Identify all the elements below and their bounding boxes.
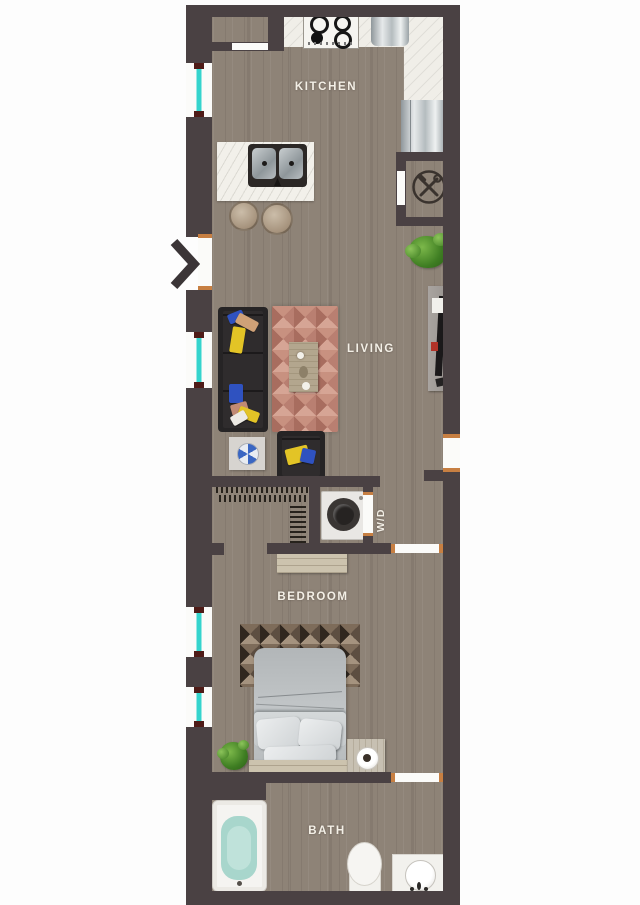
entry-door-opening: [198, 237, 212, 287]
laundry-door-opening: [363, 495, 373, 533]
wall-closet-top: [211, 476, 380, 487]
armchair-pillow: [300, 448, 317, 465]
wall-left: [186, 657, 212, 687]
burner-icon: [334, 31, 352, 49]
bath-door-opening: [395, 773, 439, 782]
sink-basin-left: [252, 148, 276, 179]
bed: [254, 648, 346, 770]
window: [186, 687, 212, 727]
wall-closet-divider: [309, 487, 320, 543]
potted-plant: [409, 236, 447, 268]
bath-door-jamb: [439, 773, 443, 782]
bedroom-label: BEDROOM: [263, 591, 363, 603]
fridge-handle: [401, 100, 406, 152]
wall-stub-right: [424, 470, 443, 481]
bathtub-water: [221, 816, 257, 880]
floorplan-canvas: KITCHEN LIVING W/D BEDROOM BATH: [0, 0, 640, 905]
living-label: LIVING: [331, 343, 411, 355]
bar-stool: [261, 203, 293, 235]
wall-left: [186, 117, 212, 237]
faucet-icon: [274, 178, 281, 186]
sink-basin-right: [279, 148, 303, 179]
bath-label: BATH: [277, 825, 377, 837]
entry-closet-door-gap: [232, 43, 268, 50]
kitchen-label: KITCHEN: [276, 81, 376, 93]
utility-tools-icon: [411, 169, 447, 205]
burner-icon: [310, 15, 329, 34]
wall-left: [186, 5, 212, 63]
entry-door-jamb: [198, 234, 212, 238]
wall-left: [186, 388, 212, 543]
wall-top: [200, 5, 460, 17]
burner-icon: [334, 15, 351, 32]
bar-stool: [229, 201, 259, 231]
vanity-faucet-icon: [417, 882, 421, 890]
wall-left: [186, 290, 212, 332]
wall-left: [186, 555, 212, 607]
laundry-label: W/D: [375, 498, 387, 542]
tub-drain-icon: [237, 881, 242, 886]
bedroom-door-opening: [395, 544, 439, 553]
console-item-red: [431, 342, 438, 351]
sofa: [218, 307, 268, 432]
decor-bowl: [237, 443, 259, 465]
bathtub: [212, 800, 267, 892]
sofa-pillow: [229, 384, 243, 403]
closet-hanging-clothes: [219, 495, 306, 502]
counter-appliance: [371, 13, 409, 46]
window: [186, 63, 212, 117]
washer-dryer: [321, 491, 368, 540]
wall-bedroom-top: [267, 543, 391, 554]
right-door-opening: [443, 438, 460, 468]
bedroom-door-jamb: [439, 544, 443, 553]
window: [186, 332, 212, 388]
toilet: [347, 842, 382, 886]
wall-left: [186, 727, 212, 905]
entry-arrow-icon: [170, 238, 200, 290]
wall-stub-left: [186, 543, 224, 555]
utility-closet-door-gap: [397, 171, 405, 205]
island-sink: [248, 144, 307, 187]
entry-closet-wall-right: [268, 5, 284, 47]
wall-tub-nook: [206, 781, 266, 800]
closet-hanging-clothes: [290, 503, 306, 543]
window: [186, 607, 212, 657]
refrigerator: [401, 100, 445, 152]
stove-controls: [308, 42, 354, 45]
armchair: [277, 431, 325, 481]
wall-right: [443, 5, 460, 434]
bedroom-plant: [220, 742, 248, 770]
fridge-door-divider: [410, 100, 411, 152]
side-table: [229, 437, 265, 470]
kitchen-counter-right: [404, 14, 443, 102]
wall-right: [443, 472, 460, 905]
coffee-table: [289, 342, 318, 392]
bed-pillow: [256, 716, 302, 750]
wall-bottom: [186, 891, 460, 905]
